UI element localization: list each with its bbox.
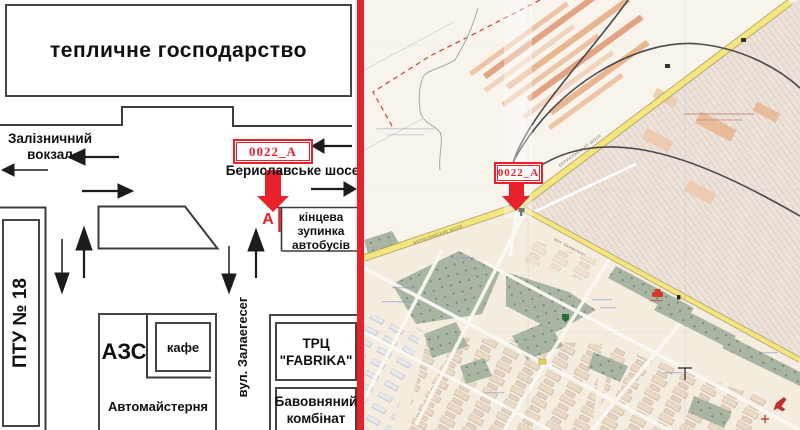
cotton-plant-label: Бавовняний комбінат bbox=[275, 393, 358, 427]
highway-label: Бериславське шосе bbox=[224, 163, 361, 178]
bus-stop-line2: зупинка bbox=[286, 224, 356, 238]
city-map-canvas: БЕРИСЛАВСЬКЕ ШОСЕ БЕРИСЛАВСЬКЕ ШОСЕ вул.… bbox=[364, 0, 800, 430]
kiosk-icon bbox=[677, 295, 680, 299]
location-diagram: тепличне господарство Залізничний вокзал… bbox=[0, 0, 365, 430]
bus-stop-line1: кінцева bbox=[286, 210, 356, 224]
map-billboard-code-plate: 0022_A bbox=[494, 162, 543, 184]
billboard-code-plate: 0022_A bbox=[233, 139, 313, 164]
street-label-wrap: вул. Залаегесег bbox=[232, 286, 254, 408]
cotton-plant-box: Бавовняний комбінат bbox=[275, 387, 357, 430]
building-icon bbox=[665, 64, 670, 68]
street-label: вул. Залаегесег bbox=[232, 286, 254, 408]
arrow-right-icon bbox=[118, 184, 133, 198]
greenhouse-label: тепличне господарство bbox=[50, 39, 307, 63]
railway-station-line1: Залізничний bbox=[3, 131, 97, 147]
railway-station-line2: вокзал bbox=[3, 147, 97, 163]
cafe-label: кафе bbox=[167, 340, 199, 355]
mall-line1: ТРЦ bbox=[280, 335, 353, 352]
greenhouse-box: тепличне господарство bbox=[5, 4, 352, 97]
arrow-down-icon bbox=[55, 273, 69, 293]
mall-box: ТРЦ "FABRIKA" bbox=[275, 322, 357, 381]
arrow-up-icon bbox=[76, 227, 92, 250]
arrow-up-icon bbox=[248, 229, 264, 251]
landmark-icon bbox=[539, 359, 546, 364]
school-label-wrap: ПТУ № 18 bbox=[4, 221, 38, 425]
railway-station-label: Залізничний вокзал bbox=[3, 131, 97, 163]
building-icon bbox=[741, 38, 746, 42]
cotton-line2: комбінат bbox=[275, 410, 358, 427]
billboard-code: 0022_A bbox=[249, 144, 297, 160]
billboard-marker: А bbox=[258, 211, 278, 229]
mall-label: ТРЦ "FABRIKA" bbox=[280, 335, 353, 369]
cotton-line1: Бавовняний bbox=[275, 393, 358, 410]
city-map: БЕРИСЛАВСЬКЕ ШОСЕ БЕРИСЛАВСЬКЕ ШОСЕ вул.… bbox=[364, 0, 800, 430]
fence-line bbox=[0, 107, 352, 126]
mall-line2: "FABRIKA" bbox=[280, 352, 353, 369]
traffic-island bbox=[99, 207, 218, 249]
cafe-box: кафе bbox=[155, 322, 211, 372]
map-billboard-code: 0022_A bbox=[498, 167, 539, 179]
red-divider bbox=[357, 0, 364, 430]
arrow-left-icon bbox=[312, 139, 324, 153]
auto-repair-label: Автомайстерня bbox=[99, 399, 217, 414]
arrow-right-icon bbox=[344, 182, 356, 196]
bus-stop-label: кінцева зупинка автобусів bbox=[286, 210, 356, 252]
bus-stop-line3: автобусів bbox=[286, 238, 356, 252]
gas-station-label: АЗС bbox=[101, 339, 147, 365]
arrow-left-icon bbox=[2, 164, 14, 176]
billboard-location-scheme: тепличне господарство Залізничний вокзал… bbox=[0, 0, 800, 430]
school-label: ПТУ № 18 bbox=[4, 221, 38, 425]
